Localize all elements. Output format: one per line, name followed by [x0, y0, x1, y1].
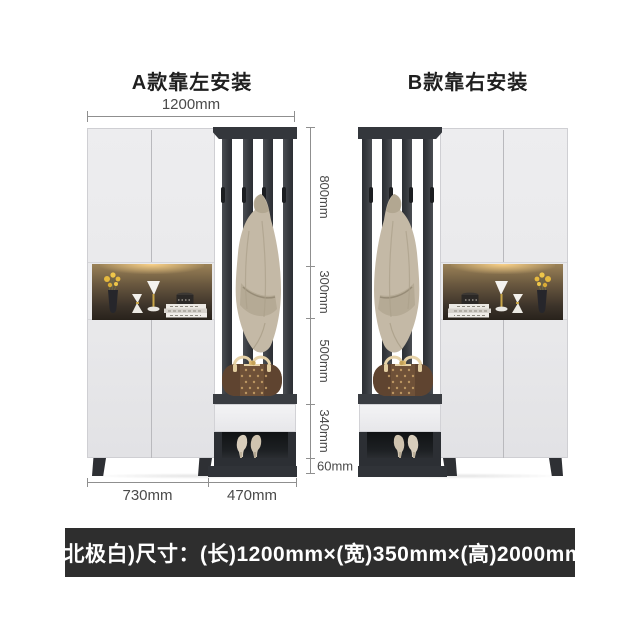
shoe-compartment	[359, 432, 441, 466]
handbag	[220, 350, 284, 397]
hourglass-vases	[132, 281, 160, 313]
dim-tick	[306, 318, 315, 319]
dim-tick	[208, 478, 209, 487]
door-seam	[503, 319, 504, 458]
hanging-coat	[229, 191, 287, 353]
dim-tick	[306, 266, 315, 267]
door-seam	[503, 130, 504, 263]
height-dimension-scale: 800mm 300mm 500mm 340mm 60mm	[304, 127, 358, 473]
shoe-compartment	[214, 432, 296, 466]
top-dimension-tick-right	[294, 111, 295, 122]
niche-decor-graphic	[443, 264, 563, 320]
dim-tick	[306, 127, 315, 128]
height-segment-label: 300mm	[317, 270, 332, 313]
spec-footer-bar: (北极白)尺寸：(长)1200mm×(宽)350mm×(高)2000mm	[65, 528, 575, 577]
height-dimension-line	[310, 127, 311, 473]
shelf-line	[441, 262, 567, 263]
door-seam	[151, 130, 152, 263]
flower-vase	[104, 272, 120, 313]
high-heels	[222, 432, 288, 458]
top-dimension-tick-left	[87, 111, 88, 122]
bench-drawer	[214, 404, 296, 432]
spec-text: (北极白)尺寸：(长)1200mm×(宽)350mm×(高)2000mm	[65, 528, 575, 577]
bottom-left-dimension-label: 730mm	[87, 487, 208, 504]
rack-top-cap	[213, 127, 297, 139]
high-heels	[367, 432, 433, 458]
product-dimension-diagram: A款靠左安装 B款靠右安装 1200mm	[0, 0, 640, 640]
storage-cabinet	[440, 128, 568, 458]
flower-vase	[535, 272, 551, 313]
book-stack	[164, 293, 207, 318]
bottom-dimension-line	[87, 482, 297, 483]
top-width-dimension-label: 1200mm	[87, 96, 295, 113]
storage-cabinet	[87, 128, 215, 458]
dim-tick	[306, 404, 315, 405]
bottom-width-dimensions: 730mm 470mm	[87, 478, 297, 508]
cabinet-unit-b	[358, 127, 568, 477]
coat-hook-icon	[430, 187, 434, 203]
model-a-title: A款靠左安装	[87, 66, 297, 95]
shelf-line	[88, 262, 214, 263]
bench-drawer	[359, 404, 441, 432]
bottom-right-dimension-label: 470mm	[208, 487, 296, 504]
cabinet-unit-a	[87, 127, 297, 477]
height-segment-label: 340mm	[317, 409, 332, 452]
height-segment-label: 60mm	[317, 459, 353, 474]
model-b-title: B款靠右安装	[363, 66, 573, 95]
base-plinth	[208, 466, 297, 477]
hourglass-vases	[495, 281, 523, 313]
coat-hook-icon	[221, 187, 225, 203]
dim-tick	[87, 478, 88, 487]
book-stack	[448, 293, 491, 318]
display-niche	[92, 264, 212, 320]
base-plinth	[358, 466, 447, 477]
display-niche	[443, 264, 563, 320]
dim-tick	[296, 478, 297, 487]
dim-tick	[306, 473, 315, 474]
height-segment-label: 500mm	[317, 339, 332, 382]
rack-top-cap	[358, 127, 442, 139]
hanging-coat	[368, 191, 426, 353]
door-seam	[151, 319, 152, 458]
niche-decor-graphic	[92, 264, 212, 320]
dim-tick	[306, 458, 315, 459]
top-dimension-line	[87, 116, 295, 117]
handbag	[371, 350, 435, 397]
height-segment-label: 800mm	[317, 175, 332, 218]
